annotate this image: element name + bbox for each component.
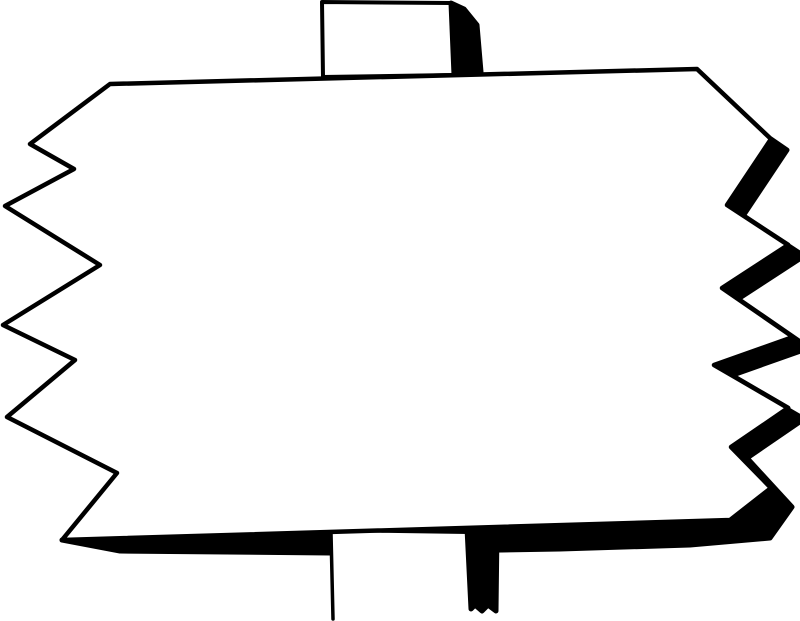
top-post-shadow [451, 3, 481, 75]
top-post [322, 2, 454, 77]
bottom-post-left-outline [331, 533, 333, 619]
bottom-post [331, 532, 470, 621]
illustration-canvas [0, 0, 800, 621]
blank-sign-illustration [0, 0, 800, 621]
bottom-post-shadow [467, 528, 497, 611]
sign-face [3, 69, 793, 540]
